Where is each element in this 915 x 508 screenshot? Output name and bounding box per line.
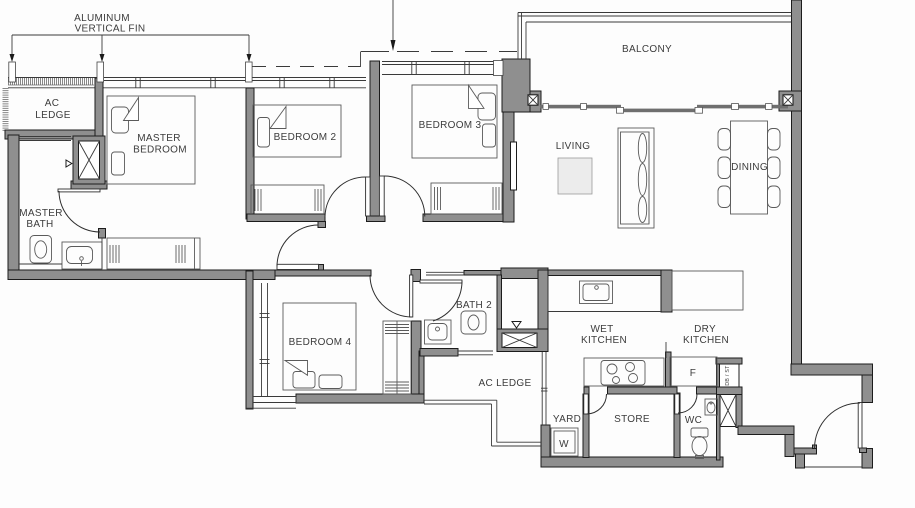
svg-text:KITCHEN: KITCHEN	[581, 335, 627, 346]
svg-text:DRY: DRY	[694, 324, 716, 335]
svg-text:BATH: BATH	[26, 219, 53, 230]
svg-text:W: W	[559, 439, 569, 450]
svg-text:YARD: YARD	[553, 414, 581, 425]
svg-text:MASTER: MASTER	[137, 133, 180, 144]
svg-text:VERTICAL FIN: VERTICAL FIN	[75, 24, 146, 35]
svg-text:BEDROOM: BEDROOM	[133, 145, 187, 156]
svg-text:ALUMINUM: ALUMINUM	[74, 13, 130, 24]
svg-text:LEDGE: LEDGE	[35, 110, 70, 121]
svg-text:MASTER: MASTER	[19, 208, 62, 219]
svg-text:BEDROOM 4: BEDROOM 4	[289, 337, 352, 348]
svg-text:BATH 2: BATH 2	[456, 300, 492, 311]
svg-text:LIVING: LIVING	[556, 141, 591, 152]
svg-text:AC: AC	[45, 98, 60, 109]
svg-text:BEDROOM 2: BEDROOM 2	[274, 132, 337, 143]
svg-text:DB / ST: DB / ST	[725, 365, 731, 386]
svg-text:BALCONY: BALCONY	[622, 44, 672, 55]
svg-text:WET: WET	[590, 324, 613, 335]
svg-text:STORE: STORE	[614, 414, 650, 425]
svg-text:WC: WC	[685, 415, 702, 426]
svg-text:DINING: DINING	[731, 162, 768, 173]
svg-text:F: F	[690, 368, 696, 379]
svg-text:BEDROOM 3: BEDROOM 3	[419, 120, 482, 131]
svg-text:KITCHEN: KITCHEN	[683, 335, 729, 346]
svg-text:AC LEDGE: AC LEDGE	[479, 378, 532, 389]
